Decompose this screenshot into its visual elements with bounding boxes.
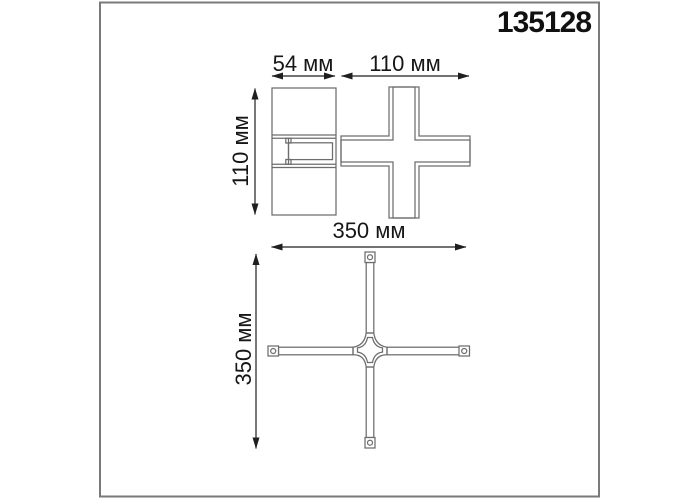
connector-arm-bottom (366, 367, 374, 438)
dim-label-overall-height: 350 мм (231, 312, 256, 385)
end-plate-bottom (365, 438, 375, 449)
technical-drawing-page: 135128 54 мм 110 мм 110 мм 350 мм 350 мм (0, 0, 700, 500)
connector-arm-right (387, 347, 460, 355)
dim-label-side-width: 54 мм (273, 51, 334, 76)
dim-label-side-height: 110 мм (228, 115, 253, 186)
connector-arm-top (366, 263, 374, 334)
technical-drawing: 135128 54 мм 110 мм 110 мм 350 мм 350 мм (0, 0, 700, 500)
end-plate-right (459, 346, 470, 356)
end-plate-top (365, 252, 375, 263)
dim-label-top-view-width: 110 мм (369, 51, 440, 76)
end-plate-left (268, 346, 279, 356)
dim-label-overall-width: 350 мм (332, 218, 405, 243)
article-number: 135128 (497, 6, 591, 39)
connector-arm-left (279, 347, 354, 355)
